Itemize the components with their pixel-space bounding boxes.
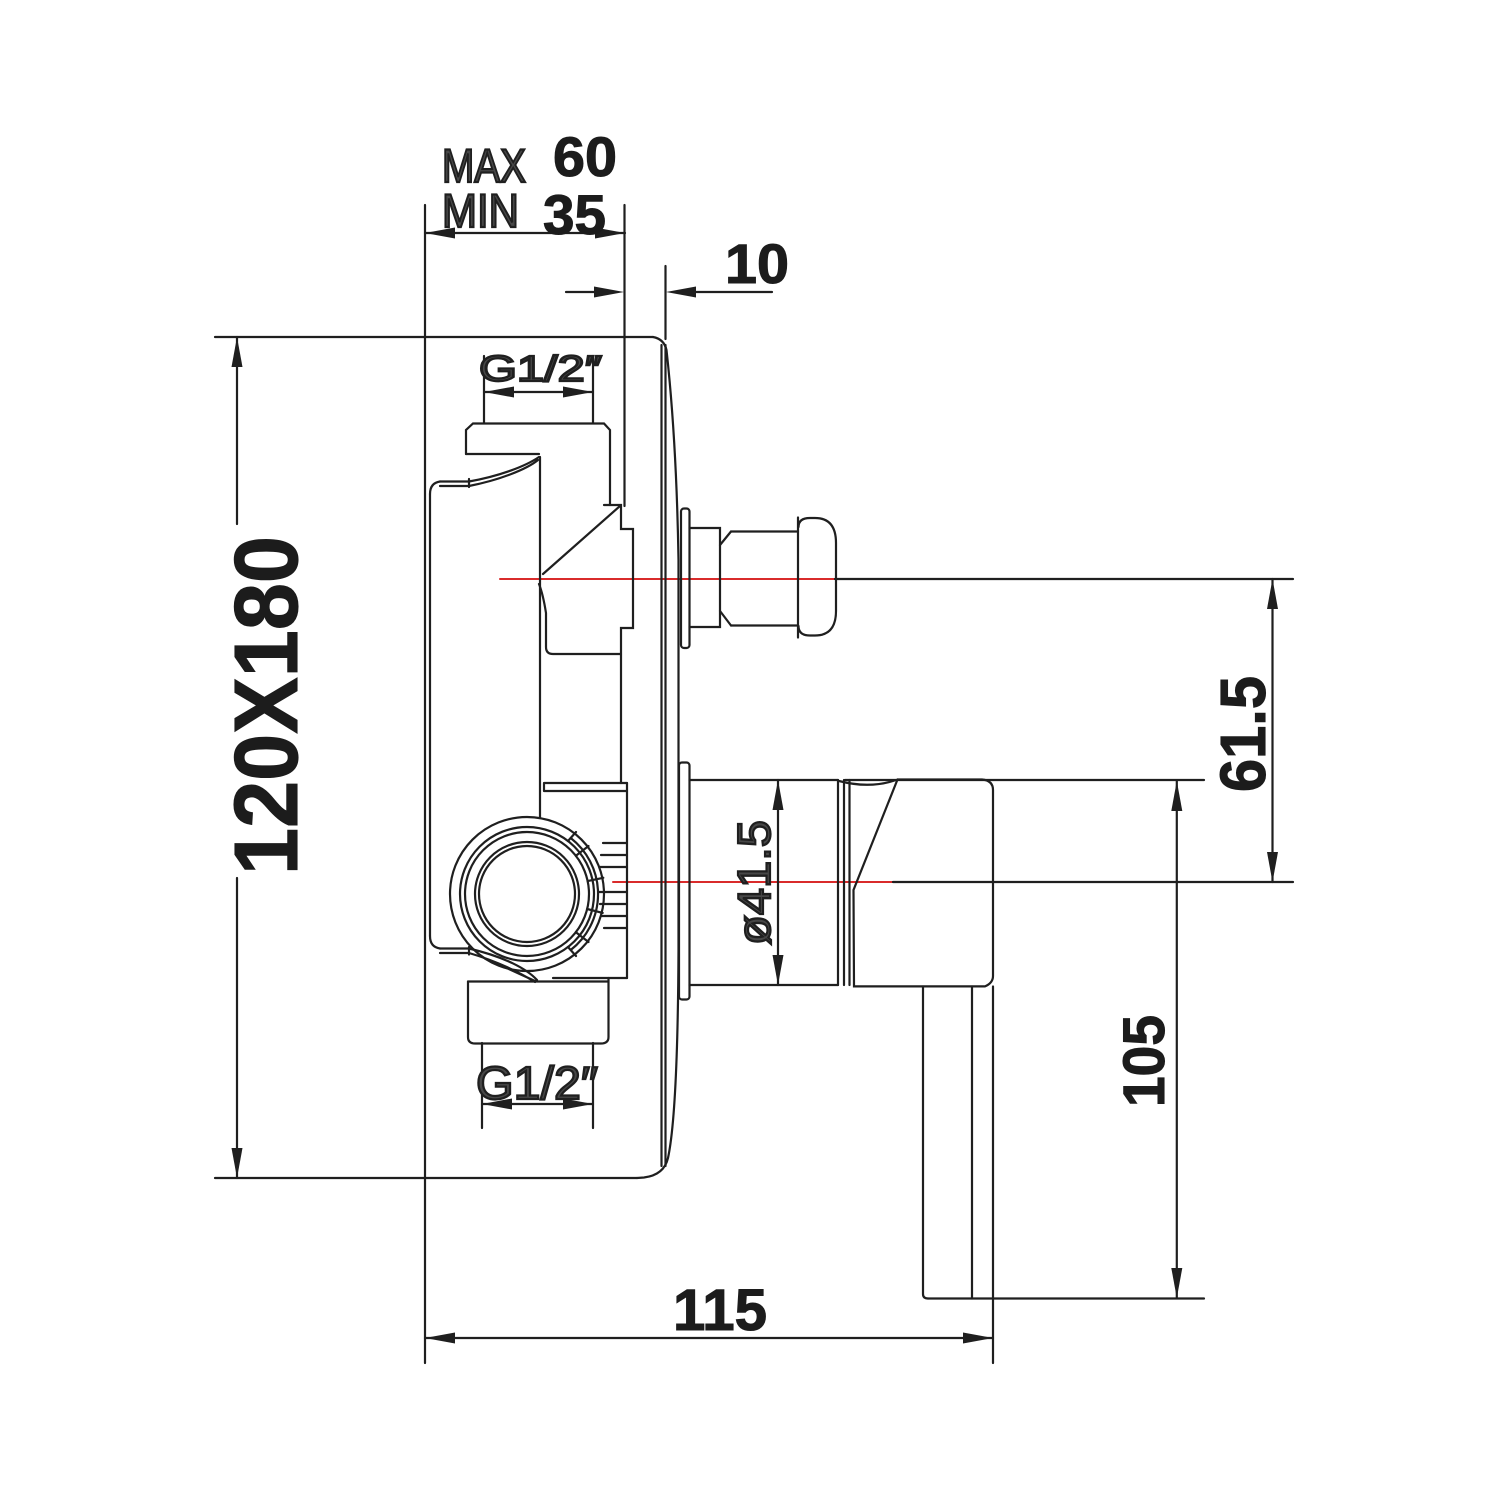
svg-text:G1/2″: G1/2″: [476, 1057, 598, 1109]
svg-text:61.5: 61.5: [1207, 676, 1279, 792]
svg-text:ø41.5: ø41.5: [728, 820, 780, 945]
svg-text:60: 60: [553, 125, 617, 188]
svg-text:MIN: MIN: [442, 184, 519, 237]
svg-text:115: 115: [673, 1278, 767, 1343]
svg-text:105: 105: [1112, 1015, 1177, 1107]
svg-text:10: 10: [725, 232, 789, 295]
svg-text:G1/2″: G1/2″: [479, 348, 602, 389]
svg-text:35: 35: [543, 183, 606, 246]
svg-text:120X180: 120X180: [217, 536, 317, 875]
